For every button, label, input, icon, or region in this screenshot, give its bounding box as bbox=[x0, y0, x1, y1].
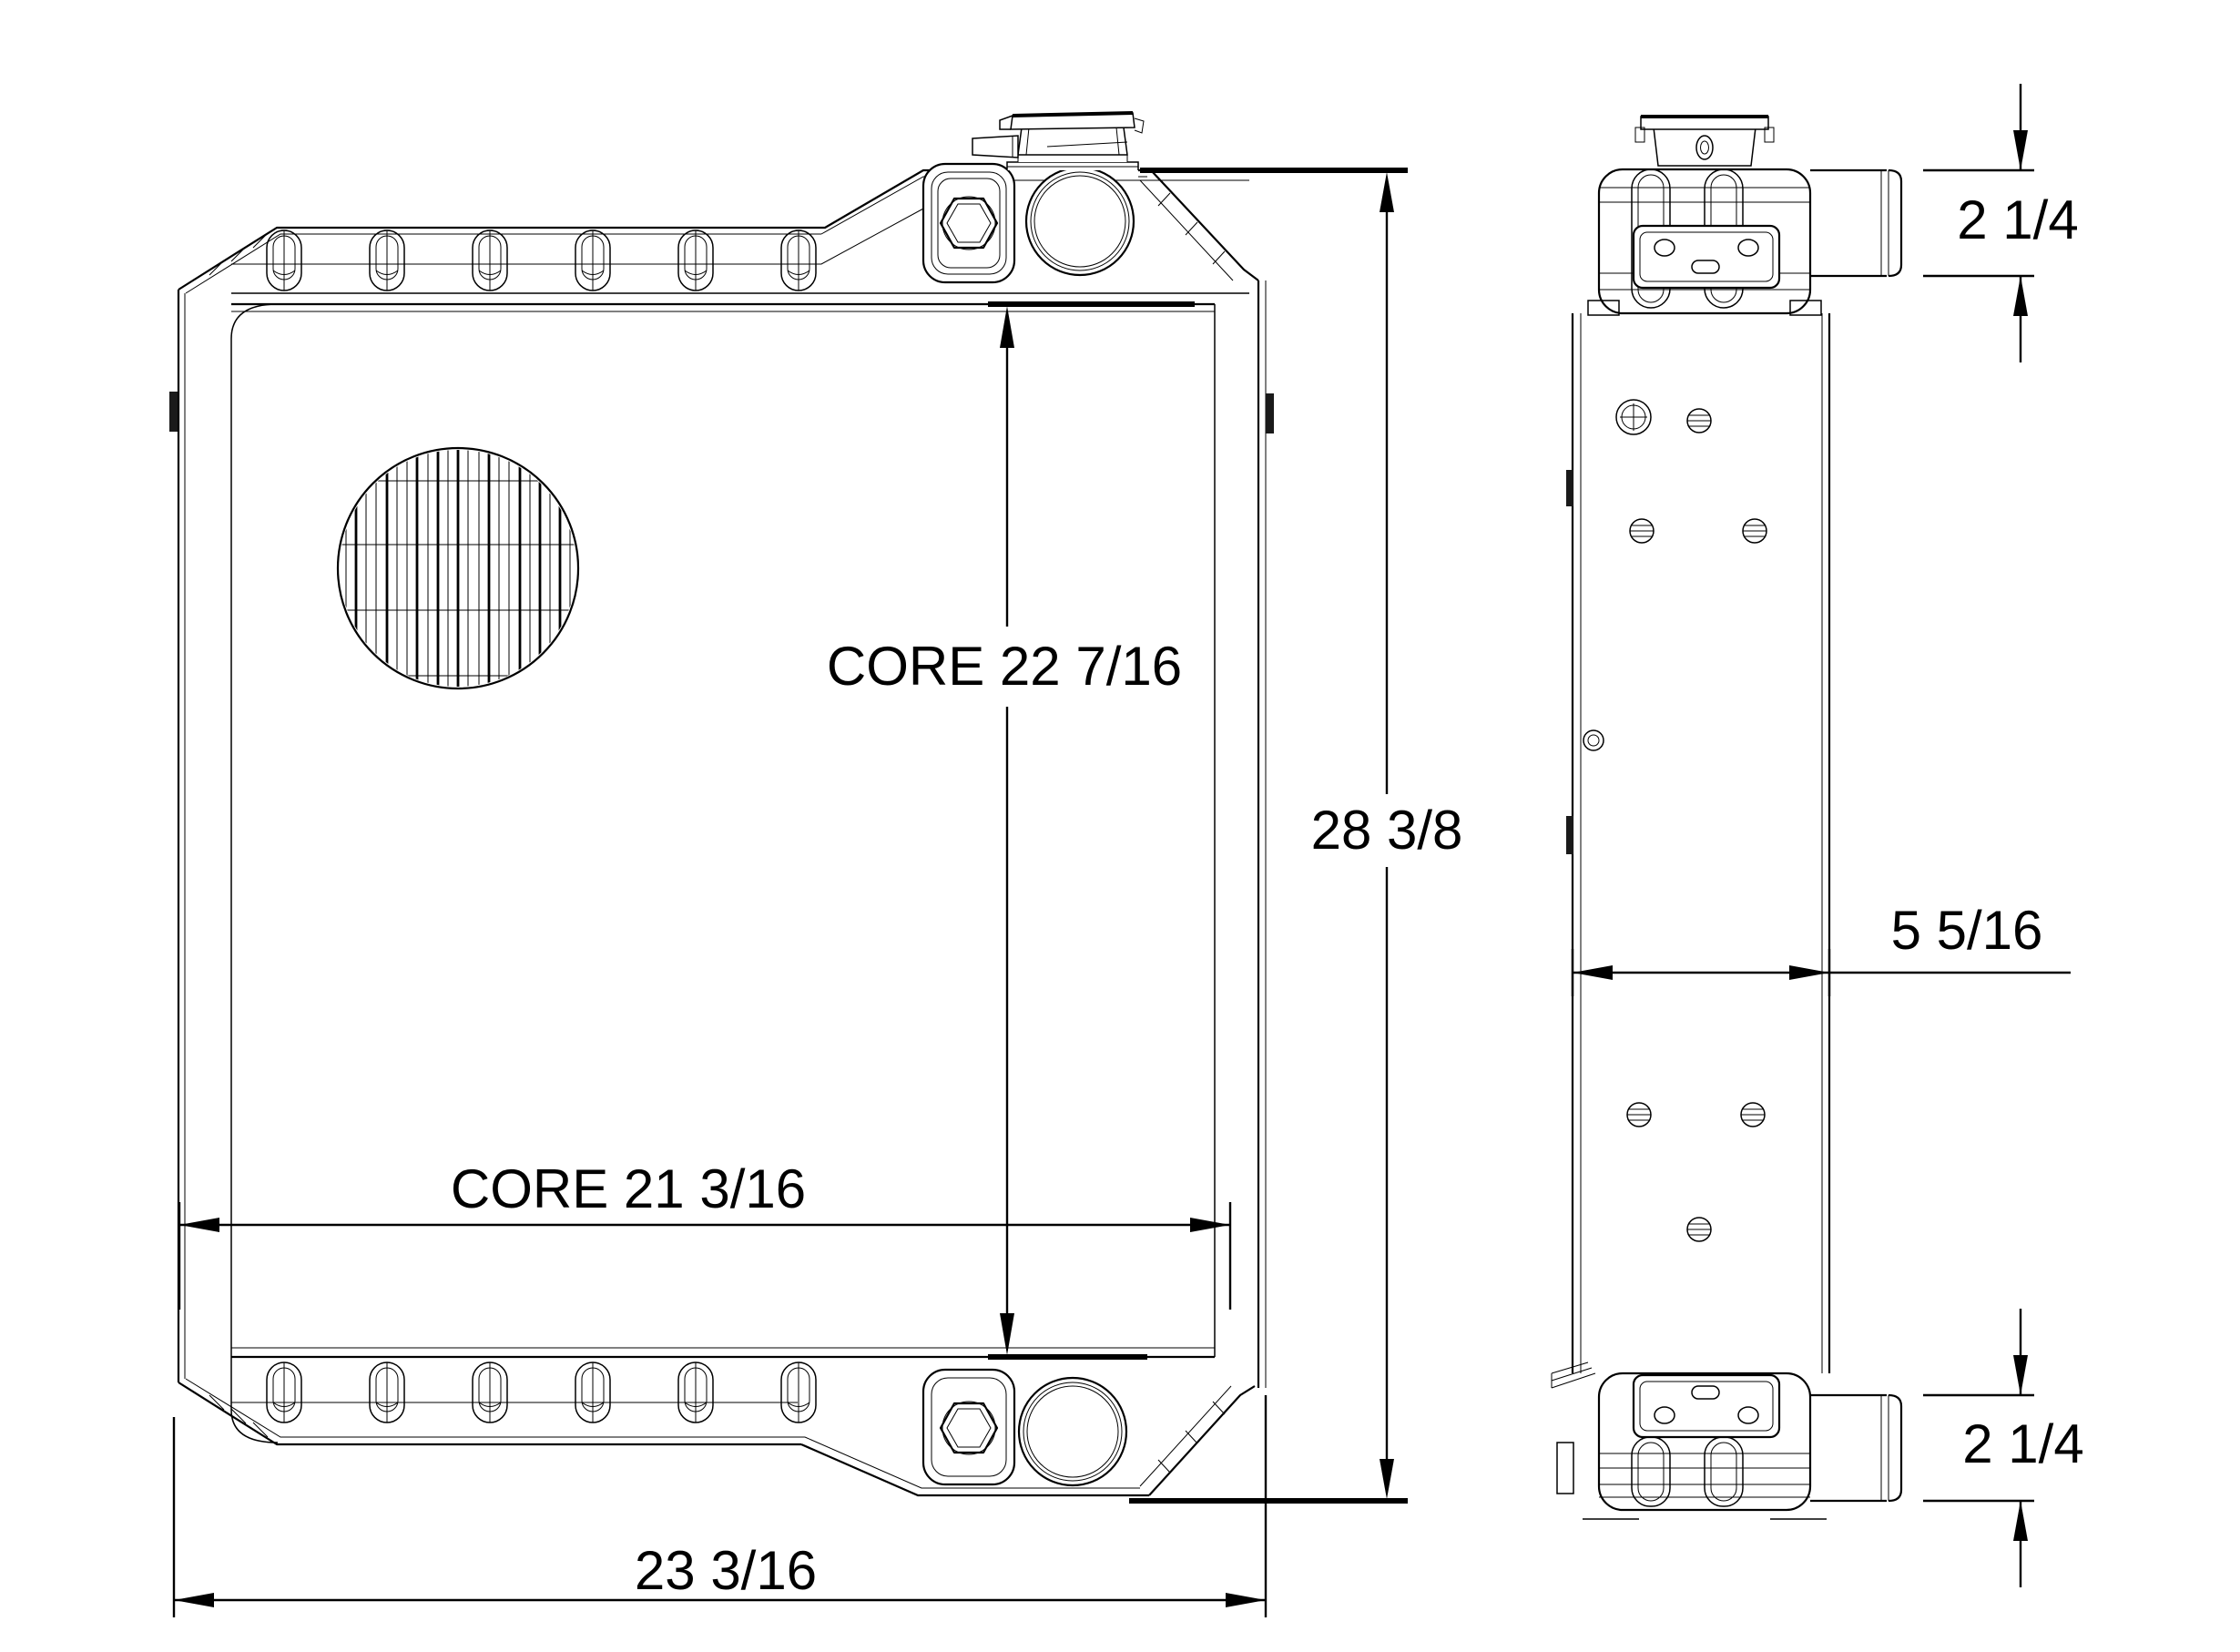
fan-opening bbox=[338, 446, 578, 690]
hatched-bolt-icon bbox=[1627, 1103, 1651, 1127]
arrow-right-icon bbox=[1226, 1593, 1266, 1607]
front-view bbox=[169, 113, 1274, 1495]
dimension-overall-height: 28 3/8 bbox=[1129, 170, 1462, 1617]
arrow-down-icon bbox=[1000, 1313, 1014, 1355]
inlet-height-label: 2 1/4 bbox=[1957, 189, 2078, 250]
side-lower-bracket bbox=[1634, 1375, 1779, 1437]
front-inlet-port bbox=[1026, 168, 1134, 275]
overall-width-label: 23 3/16 bbox=[635, 1540, 817, 1601]
hatched-bolt-icon bbox=[1687, 409, 1711, 433]
outlet-height-label: 2 1/4 bbox=[1962, 1413, 2083, 1474]
front-left-channel bbox=[169, 290, 278, 1443]
hatched-bolt-icon bbox=[1741, 1103, 1765, 1127]
hatched-bolt-icon bbox=[1630, 519, 1654, 543]
side-inlet-pipe bbox=[1810, 170, 1901, 276]
side-upper-bracket bbox=[1634, 226, 1779, 288]
arrow-up-icon bbox=[2013, 276, 2028, 316]
side-upper-tank bbox=[1588, 117, 1901, 315]
overall-height-label: 28 3/8 bbox=[1311, 800, 1463, 861]
dimension-outlet-height: 2 1/4 bbox=[1923, 1309, 2084, 1587]
bolt-washer-icon bbox=[1616, 400, 1651, 434]
front-bottom-bracket bbox=[923, 1370, 1014, 1484]
top-tank-slots bbox=[267, 230, 816, 291]
grommet-icon bbox=[1583, 730, 1604, 750]
right-channel-clip bbox=[1266, 393, 1274, 433]
front-top-bracket bbox=[923, 164, 1014, 282]
dimension-inlet-height: 2 1/4 bbox=[1923, 84, 2079, 362]
radiator-cap-front bbox=[972, 113, 1144, 170]
left-channel-clip bbox=[169, 392, 178, 432]
arrow-up-icon bbox=[1380, 172, 1394, 212]
side-view bbox=[1552, 117, 1901, 1519]
front-right-channel bbox=[1215, 280, 1274, 1388]
side-clip-upper bbox=[1566, 470, 1573, 506]
arrow-up-icon bbox=[2013, 1501, 2028, 1541]
core-width-label: CORE 21 3/16 bbox=[451, 1158, 806, 1219]
arrow-down-icon bbox=[1380, 1459, 1394, 1499]
arrow-right-icon bbox=[1789, 965, 1829, 980]
radiator-drawing: CORE 22 7/16 28 3/8 CORE 21 3/16 23 3/16… bbox=[0, 0, 2240, 1652]
drawing-sheet: CORE 22 7/16 28 3/8 CORE 21 3/16 23 3/16… bbox=[0, 0, 2240, 1652]
arrow-left-icon bbox=[179, 1218, 219, 1232]
side-fasteners bbox=[1583, 400, 1767, 1241]
front-outlet-port bbox=[1019, 1378, 1126, 1485]
dimension-core-width: CORE 21 3/16 bbox=[179, 1158, 1230, 1310]
arrow-right-icon bbox=[1190, 1218, 1230, 1232]
side-drain-fitting bbox=[1557, 1443, 1573, 1494]
bottom-right-chamfer-hatch bbox=[1158, 1402, 1225, 1473]
arrow-up-icon bbox=[1000, 306, 1014, 348]
hatched-bolt-icon bbox=[1687, 1218, 1711, 1241]
arrow-left-icon bbox=[1573, 965, 1613, 980]
top-right-chamfer-hatch bbox=[1158, 193, 1225, 264]
arrow-left-icon bbox=[174, 1593, 214, 1607]
arrow-down-icon bbox=[2013, 1355, 2028, 1395]
bottom-tank-slots bbox=[267, 1362, 816, 1423]
depth-label: 5 5/16 bbox=[1891, 900, 2043, 961]
core-height-label: CORE 22 7/16 bbox=[827, 636, 1182, 697]
fan-fin-lines-thick bbox=[356, 446, 560, 690]
hatched-bolt-icon bbox=[1743, 519, 1767, 543]
side-outlet-pipe bbox=[1810, 1395, 1901, 1501]
radiator-cap-side bbox=[1635, 117, 1774, 166]
side-clip-lower bbox=[1566, 816, 1573, 854]
side-body bbox=[1566, 313, 1829, 1373]
side-lower-tank bbox=[1552, 1362, 1901, 1519]
arrow-down-icon bbox=[2013, 130, 2028, 170]
dimension-core-height: CORE 22 7/16 bbox=[827, 304, 1195, 1357]
cap-handle bbox=[972, 136, 1018, 158]
